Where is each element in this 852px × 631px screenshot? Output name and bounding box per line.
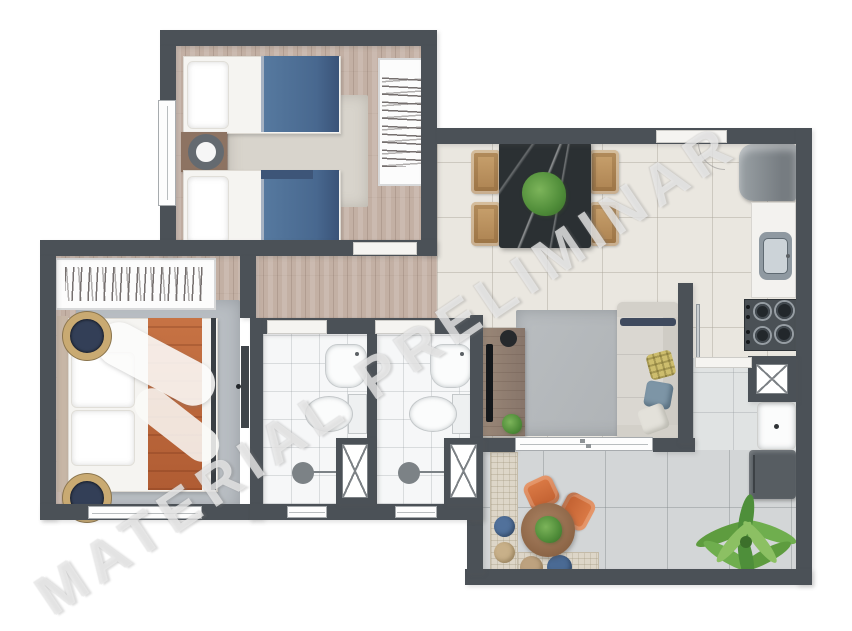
bathroom1-window bbox=[287, 506, 327, 518]
washer-door-line bbox=[753, 455, 755, 493]
wall-master-right bbox=[240, 256, 256, 318]
cooktop-knob-1 bbox=[746, 305, 750, 309]
tv bbox=[486, 344, 493, 422]
bathroom2-shower-drain bbox=[398, 462, 420, 484]
cooktop-knob-4 bbox=[746, 340, 750, 344]
refrigerator bbox=[739, 144, 796, 201]
bathroom2-toilet-bowl bbox=[409, 396, 457, 432]
wall-kitchen-stub bbox=[678, 283, 693, 443]
wall-main-top bbox=[437, 128, 796, 144]
shaft-service bbox=[756, 364, 788, 394]
bedroom2-door-threshold bbox=[353, 242, 417, 255]
wall-bedroom2-right bbox=[421, 46, 437, 256]
bed2-navy-fold bbox=[261, 170, 313, 179]
wall-right bbox=[796, 128, 812, 585]
sliding-door-handle-2 bbox=[586, 444, 591, 448]
console-plant bbox=[502, 414, 522, 434]
wall-master-left bbox=[40, 256, 56, 520]
balcony-table-plant bbox=[535, 516, 562, 543]
dining-chair-1 bbox=[471, 150, 501, 194]
console-pot bbox=[500, 330, 517, 347]
bed2-pillow bbox=[187, 176, 229, 244]
master-door-leaf bbox=[241, 346, 249, 428]
cooktop-knob-2 bbox=[746, 315, 750, 319]
nightstand-lamp bbox=[188, 134, 224, 170]
cooktop-burner-2 bbox=[776, 302, 793, 319]
bathroom1-door-threshold bbox=[267, 320, 327, 334]
master-pillow-2 bbox=[71, 410, 135, 466]
sofa-armrest-top bbox=[617, 302, 679, 317]
wall-bathrooms-bottom bbox=[250, 504, 483, 520]
balcony-pouf-blue-1 bbox=[494, 516, 515, 537]
sliding-door-handle-1 bbox=[580, 439, 585, 443]
cooktop-burner-4 bbox=[776, 326, 792, 342]
service-door-threshold bbox=[695, 357, 752, 368]
cooktop-burner-1 bbox=[755, 304, 770, 319]
cooktop-knob-3 bbox=[746, 330, 750, 334]
shaft-bathroom1 bbox=[342, 444, 368, 498]
bed1-pillow bbox=[187, 61, 229, 129]
service-glass-door bbox=[696, 304, 700, 358]
master-side-lamp-top bbox=[63, 312, 111, 360]
sofa-navy-cushion bbox=[620, 318, 676, 326]
bathroom2-window bbox=[395, 506, 437, 518]
bed1-blue-blanket bbox=[261, 56, 339, 132]
wall-balcony-bottom bbox=[465, 569, 812, 585]
master-door-knob bbox=[236, 384, 241, 389]
bedroom2-wardrobe bbox=[378, 58, 425, 186]
dining-chair-2 bbox=[471, 202, 501, 246]
bed2-blue-blanket bbox=[261, 170, 339, 247]
wall-bedroom2-top bbox=[160, 30, 437, 46]
dining-table-plant bbox=[522, 172, 566, 216]
laundry-tank-drain bbox=[774, 424, 779, 429]
kitchen-faucet bbox=[786, 254, 790, 258]
floor-plan: MATERIAL PRELIMINAR bbox=[0, 0, 852, 631]
balcony-pouf-tan-1 bbox=[494, 542, 515, 563]
master-wardrobe bbox=[55, 258, 216, 310]
shaft-bathroom2 bbox=[450, 444, 477, 498]
cooktop-burner-3 bbox=[755, 328, 770, 343]
wall-living-bottom-left bbox=[483, 438, 515, 452]
kitchen-sink-basin bbox=[763, 238, 788, 274]
bedroom2-window bbox=[158, 100, 176, 206]
